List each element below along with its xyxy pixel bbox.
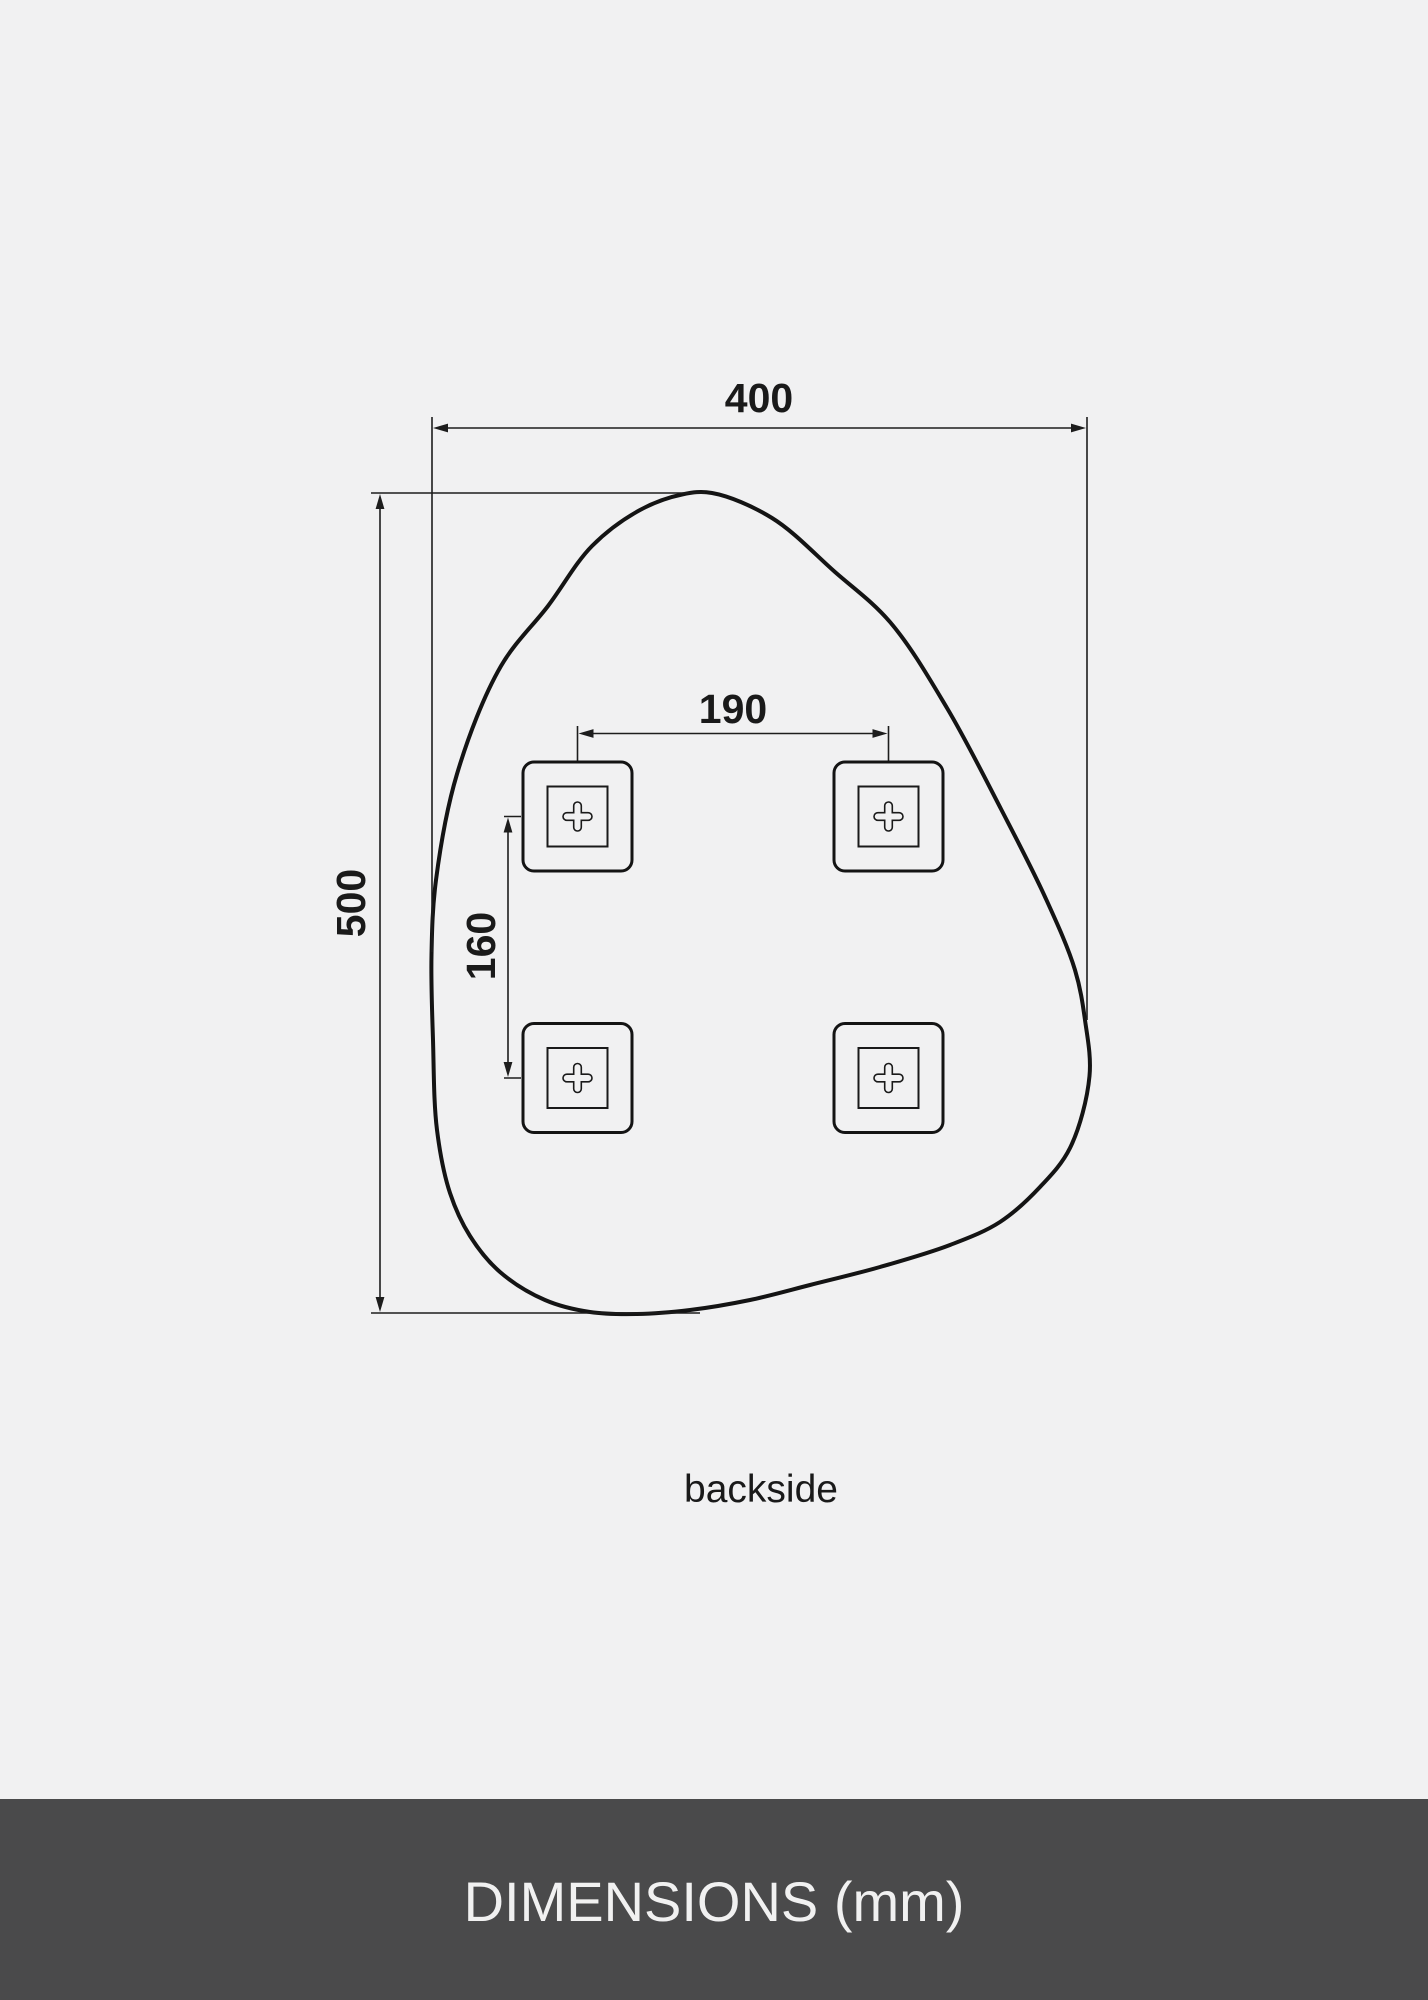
- svg-text:DIMENSIONS (mm): DIMENSIONS (mm): [464, 1870, 965, 1933]
- svg-text:backside: backside: [684, 1468, 838, 1511]
- svg-text:400: 400: [725, 375, 793, 421]
- svg-text:190: 190: [699, 686, 767, 732]
- svg-text:160: 160: [458, 912, 504, 980]
- svg-text:500: 500: [328, 869, 374, 937]
